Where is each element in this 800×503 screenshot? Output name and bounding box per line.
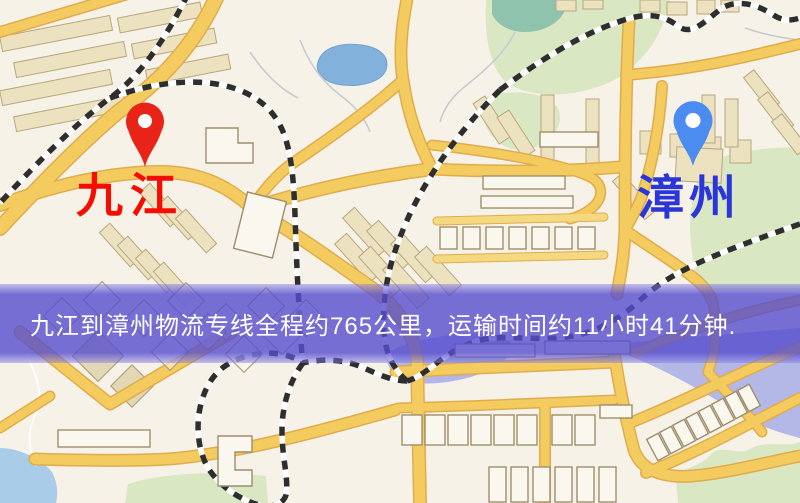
route-info-banner: 九江到漳州物流专线全程约765公里，运输时间约11小时41分钟. xyxy=(0,284,800,363)
pin-origin[interactable] xyxy=(126,103,164,167)
map-graphics xyxy=(0,0,800,503)
origin-city-label: 九江 xyxy=(76,174,184,221)
pin-destination-hole xyxy=(686,113,701,128)
pin-origin-shape[interactable] xyxy=(126,103,164,167)
map-canvas[interactable]: 九江 漳州 九江到漳州物流专线全程约765公里，运输时间约11小时41分钟. xyxy=(0,0,800,503)
pin-origin-hole xyxy=(138,114,152,128)
lake xyxy=(317,44,387,85)
route-info-text: 九江到漳州物流专线全程约765公里，运输时间约11小时41分钟. xyxy=(30,306,736,341)
destination-city-label: 漳州 xyxy=(637,176,741,223)
